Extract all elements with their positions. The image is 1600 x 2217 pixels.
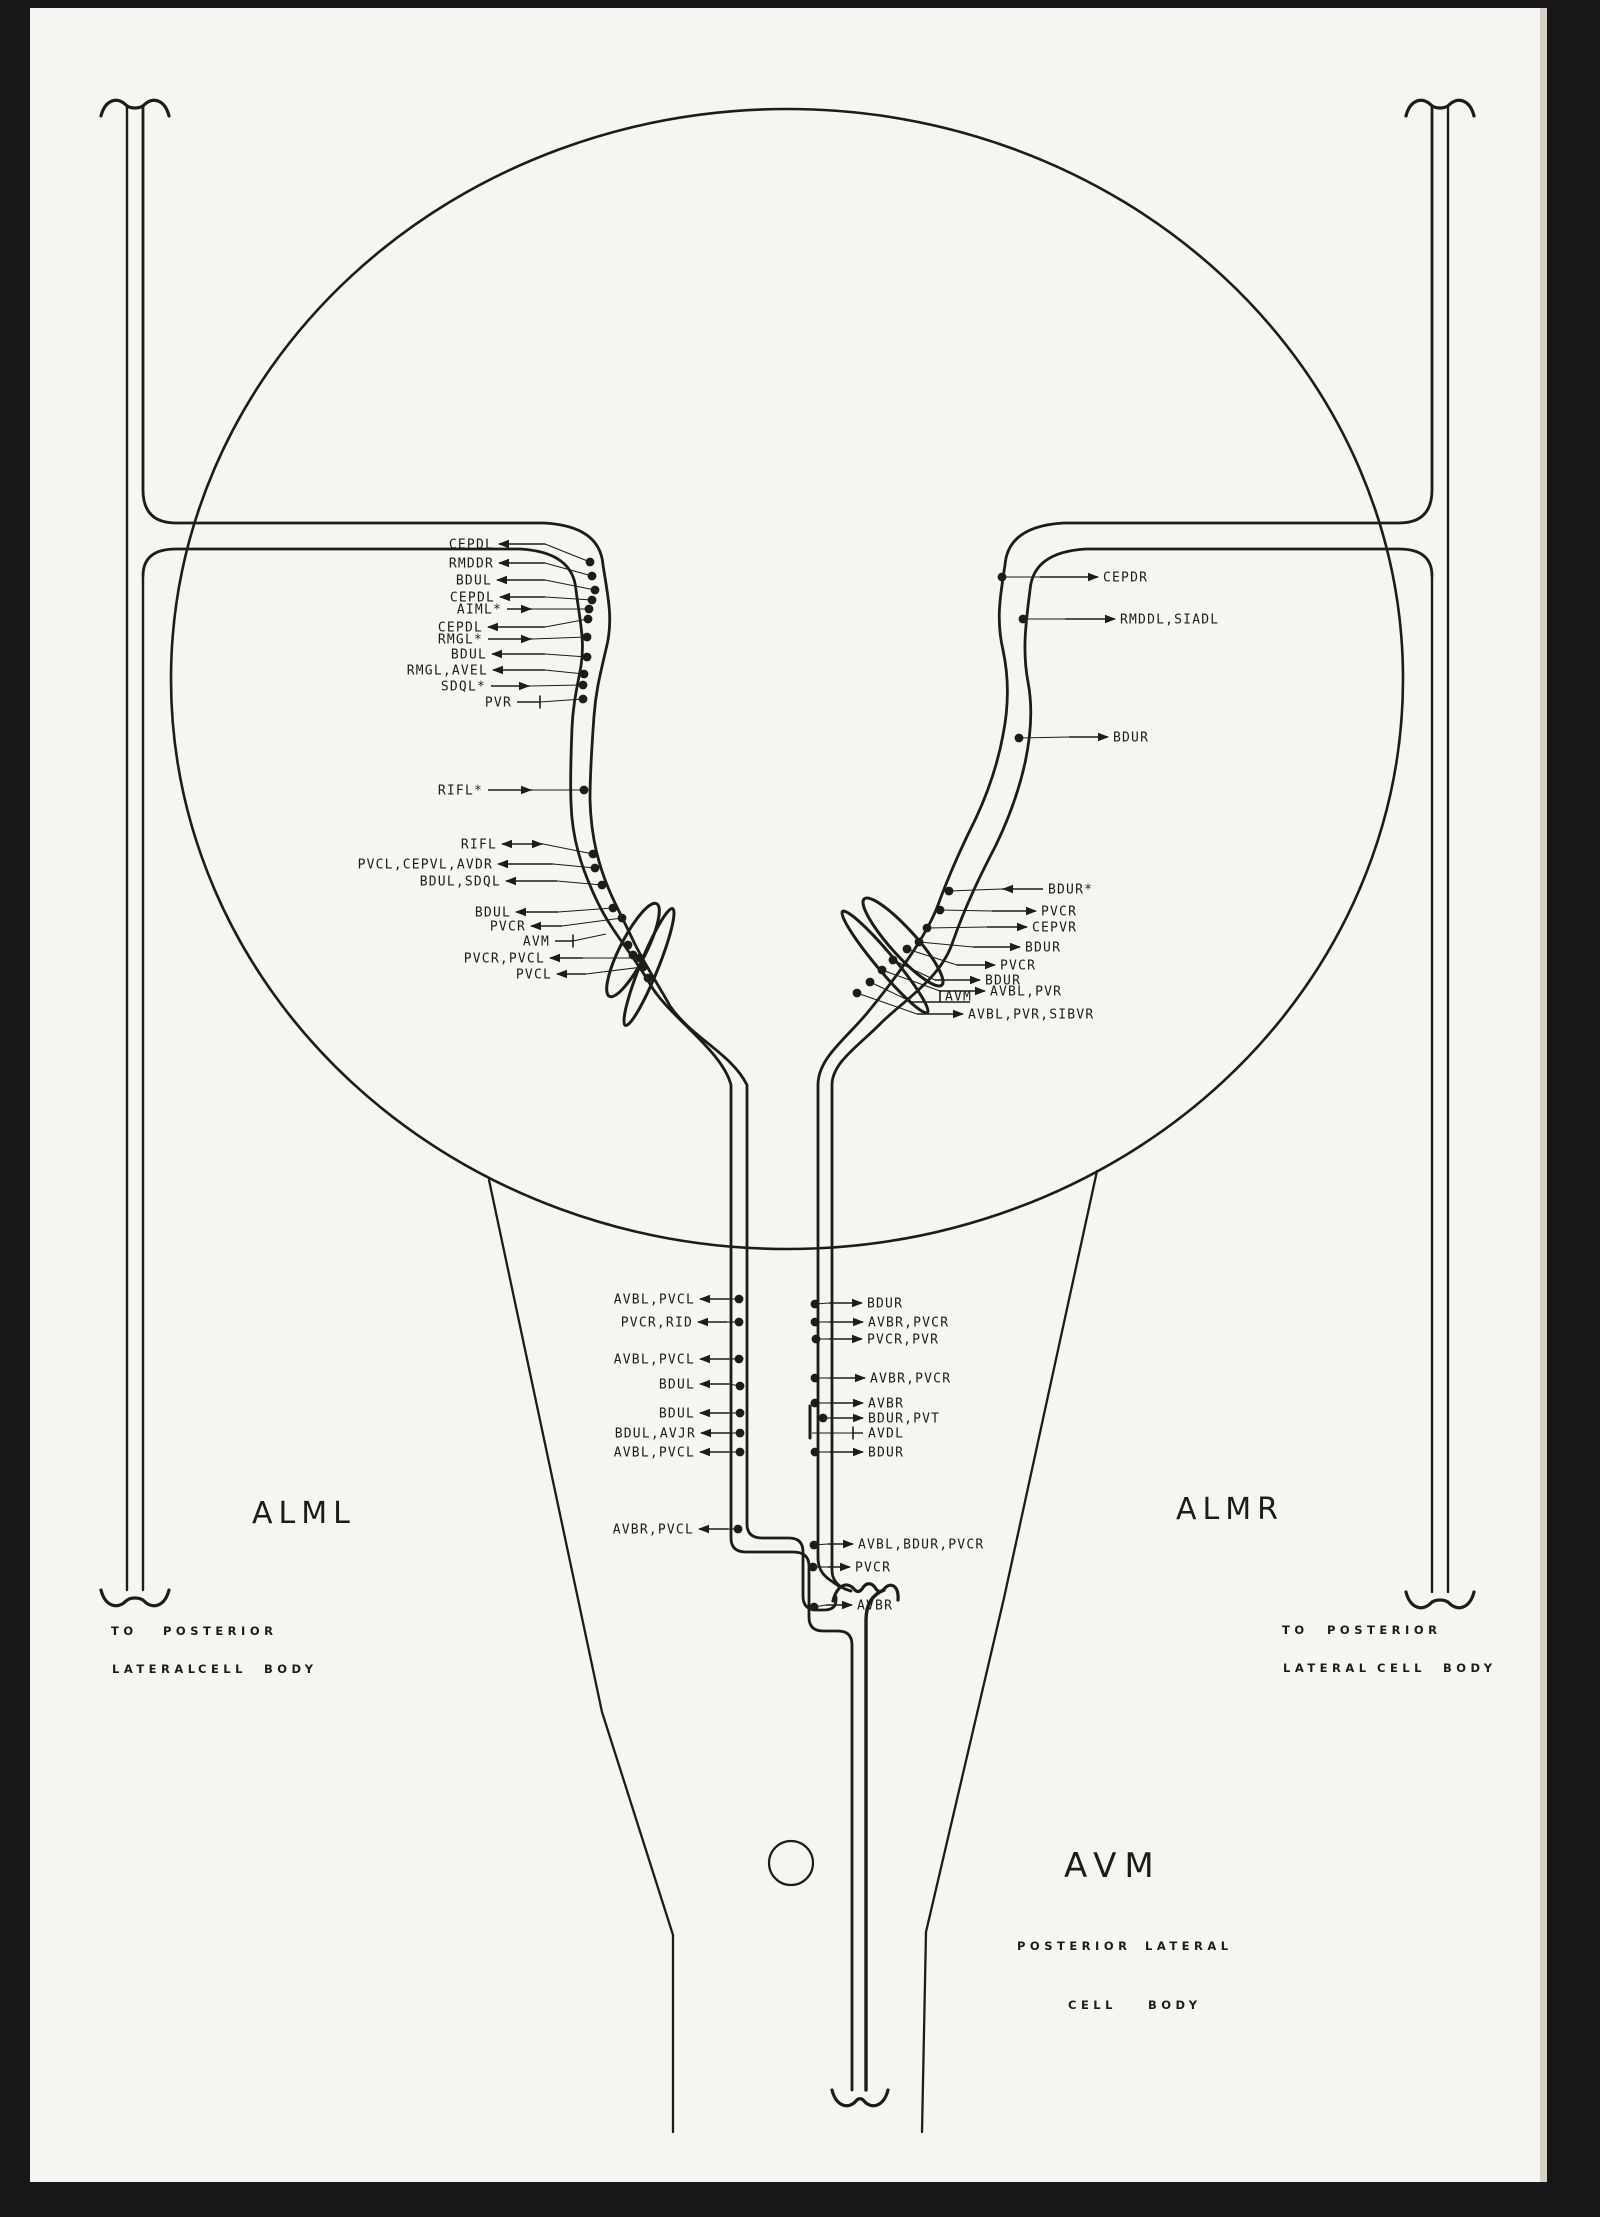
- synapse-dot: [811, 1399, 820, 1408]
- synapse-dot: [811, 1448, 820, 1457]
- paper-sheet: [30, 8, 1547, 2182]
- annotation-label: AVM: [523, 935, 550, 950]
- annotation-label: BDUR: [1113, 731, 1149, 746]
- synapse-dot: [580, 786, 589, 795]
- annotation-label: PVCR,PVR: [867, 1333, 939, 1348]
- label-alml: ALML: [252, 1496, 356, 1531]
- caption-word: TO: [1282, 1623, 1309, 1637]
- synapse-dot: [811, 1318, 820, 1327]
- caption-word: POSTERIOR: [1017, 1939, 1131, 1953]
- synapse-dot: [609, 904, 618, 913]
- synapse-dot: [735, 1295, 744, 1304]
- synapse-dot: [591, 586, 600, 595]
- annotation-label: AVBR: [857, 1599, 893, 1614]
- annotation-label: BDUR: [868, 1446, 904, 1461]
- caption-word: CELL: [1377, 1661, 1426, 1675]
- caption-word: LATERAL: [112, 1662, 200, 1676]
- annotation-label: AVBR,PVCR: [868, 1316, 949, 1331]
- synapse-dot: [735, 1318, 744, 1327]
- synapse-dot: [866, 978, 875, 987]
- annotation-label: AVBL,PVCL: [614, 1353, 695, 1368]
- annotation-label: BDUL,SDQL: [420, 875, 501, 890]
- annotation-label: PVCR: [1000, 959, 1036, 974]
- synapse-dot: [629, 951, 638, 960]
- annotation-label: RMDDL,SIADL: [1120, 613, 1219, 628]
- synapse-dot: [624, 941, 633, 950]
- annotation-label: RMGL*: [438, 633, 483, 648]
- annotation-label: BDUL,AVJR: [615, 1427, 696, 1442]
- synapse-dot: [736, 1429, 745, 1438]
- caption-word: LATERAL: [1145, 1939, 1233, 1953]
- annotation-label: PVCL: [516, 968, 552, 983]
- annotation-label: RMDDR: [449, 557, 494, 572]
- synapse-dot: [903, 945, 912, 954]
- label-avm: AVM: [1064, 1846, 1162, 1886]
- synapse-dot: [915, 938, 924, 947]
- synapse-dot: [889, 956, 898, 965]
- synapse-dot: [1015, 734, 1024, 743]
- synapse-dot: [585, 605, 594, 614]
- synapse-dot: [811, 1300, 820, 1309]
- caption-word: POSTERIOR: [1327, 1623, 1441, 1637]
- annotation-label: PVCR,PVCL: [464, 952, 545, 967]
- synapse-dot: [583, 653, 592, 662]
- annotation-label: RMGL,AVEL: [407, 664, 488, 679]
- annotation-label: RIFL: [461, 838, 497, 853]
- synapse-dot: [591, 864, 600, 873]
- annotation-label: SDQL*: [441, 680, 486, 695]
- annotation-label: PVCR: [1041, 905, 1077, 920]
- caption-word: BODY: [1148, 1998, 1202, 2012]
- synapse-dot: [923, 924, 932, 933]
- synapse-dot: [811, 1374, 820, 1383]
- synapse-dot: [584, 615, 593, 624]
- annotation-label: AVBL,PVCL: [614, 1293, 695, 1308]
- annotation-label: PVCR,RID: [621, 1316, 693, 1331]
- synapse-dot: [735, 1355, 744, 1364]
- synapse-dot: [588, 596, 597, 605]
- annotation-label: BDUR,PVT: [868, 1412, 940, 1427]
- synapse-dot: [878, 966, 887, 975]
- synapse-dot: [588, 572, 597, 581]
- annotation-label: AVDL: [868, 1427, 904, 1442]
- annotation-label: BDUL: [475, 906, 511, 921]
- annotation-label: PVCR: [490, 920, 526, 935]
- synapse-dot: [583, 633, 592, 642]
- synapse-dot: [736, 1382, 745, 1391]
- caption-word: POSTERIOR: [163, 1624, 277, 1638]
- synapse-dot: [734, 1525, 743, 1534]
- caption-word: LATERAL: [1283, 1661, 1371, 1675]
- synapse-dot: [644, 974, 653, 983]
- synapse-dot: [819, 1414, 828, 1423]
- synapse-dot: [936, 906, 945, 915]
- annotation-label: BDUL: [659, 1407, 695, 1422]
- synapse-dot: [1019, 615, 1028, 624]
- synapse-dot: [586, 558, 595, 567]
- annotation-label: CEPVR: [1032, 921, 1077, 936]
- annotation-label: AVBL,PVCL: [614, 1446, 695, 1461]
- synapse-dot: [589, 850, 598, 859]
- synapse-dot: [618, 914, 627, 923]
- synapse-dot: [810, 1541, 819, 1550]
- annotation-label: BDUL: [659, 1378, 695, 1393]
- annotation-label: BDUR*: [1048, 883, 1093, 898]
- annotation-label: CEPDL: [449, 538, 494, 553]
- synapse-dot: [998, 573, 1007, 582]
- annotation-label: CEPDR: [1103, 571, 1148, 586]
- synapse-dot: [812, 1335, 821, 1344]
- annotation-label: BDUL: [451, 648, 487, 663]
- annotation-label: AIML*: [457, 603, 502, 618]
- annotation-label: RIFL*: [438, 784, 483, 799]
- label-almr: ALMR: [1176, 1492, 1284, 1527]
- diagram-svg: ALML ALMR AVM TOPOSTERIORLATERALCELLBODY…: [0, 0, 1600, 2217]
- annotation-label: BDUL: [456, 574, 492, 589]
- annotation-label: PVCL,CEPVL,AVDR: [358, 858, 493, 873]
- synapse-dot: [579, 695, 588, 704]
- paper-edge: [1540, 8, 1547, 2182]
- annotation-label: AVBL,PVR,SIBVR: [968, 1008, 1094, 1023]
- annotation-label: PVR: [485, 696, 512, 711]
- annotation-label: BDUR: [1025, 941, 1061, 956]
- caption-word: CELL: [1068, 1998, 1117, 2012]
- annotation-label: AVBR,PVCR: [870, 1372, 951, 1387]
- caption-word: CELL: [198, 1662, 247, 1676]
- caption-word: TO: [111, 1624, 138, 1638]
- synapse-dot: [639, 963, 648, 972]
- synapse-dot: [853, 989, 862, 998]
- annotation-label: AVBL,PVR: [990, 985, 1062, 1000]
- caption-word: BODY: [1443, 1661, 1497, 1675]
- synapse-dot: [598, 881, 607, 890]
- synapse-dot: [736, 1409, 745, 1418]
- synapse-dot: [579, 681, 588, 690]
- caption-word: BODY: [264, 1662, 318, 1676]
- synapse-dot: [580, 670, 589, 679]
- annotation-label: AVBR,PVCL: [613, 1523, 694, 1538]
- annotation-label: AVBL,BDUR,PVCR: [858, 1538, 984, 1553]
- annotation-label: BDUR: [867, 1297, 903, 1312]
- synapse-dot: [809, 1563, 818, 1572]
- annotation-label: PVCR: [855, 1561, 891, 1576]
- synapse-dot: [810, 1603, 819, 1612]
- scanned-page: ALML ALMR AVM TOPOSTERIORLATERALCELLBODY…: [0, 0, 1600, 2217]
- annotation-label: AVBR: [868, 1397, 904, 1412]
- synapse-dot: [736, 1448, 745, 1457]
- synapse-dot: [945, 887, 954, 896]
